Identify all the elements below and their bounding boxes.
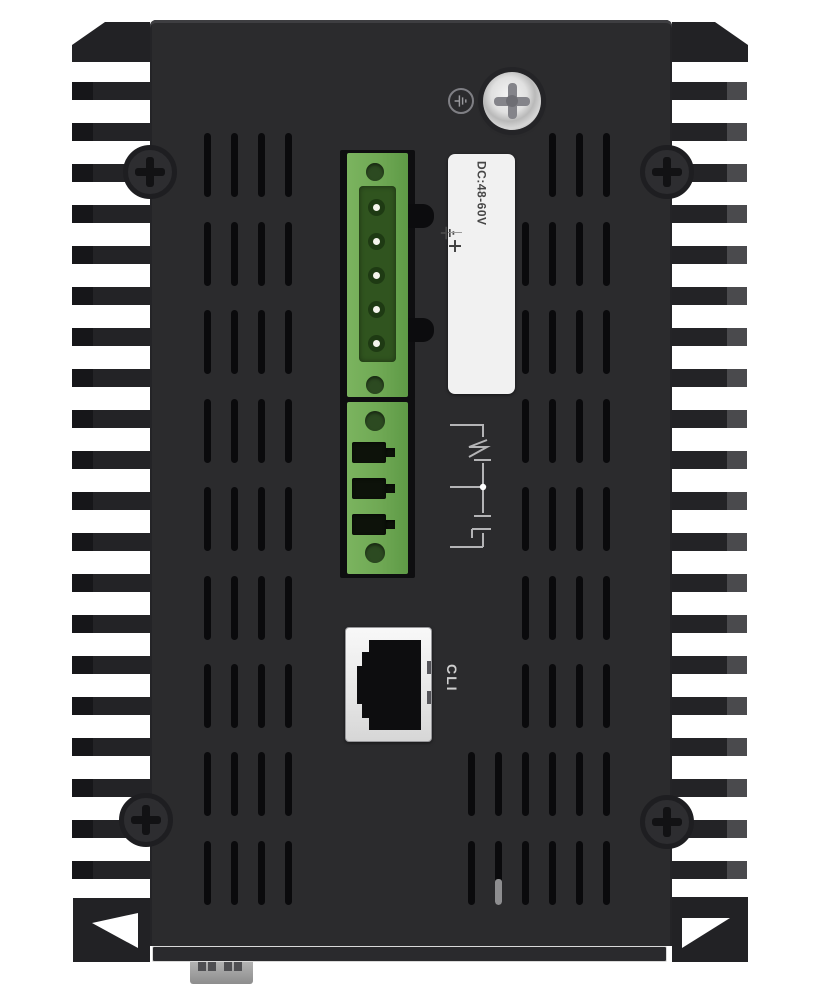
- vent-slot: [231, 222, 238, 286]
- screw-slot: [142, 805, 150, 835]
- terminal-pin: [368, 335, 385, 352]
- connector-screw-hole: [365, 411, 385, 431]
- vent-slot: [231, 310, 238, 374]
- heatsink-fin: [72, 574, 150, 592]
- vent-slot: [258, 752, 265, 816]
- connector-latch: [408, 204, 434, 228]
- heatsink-fin: [672, 615, 747, 633]
- vent-slot: [522, 752, 529, 816]
- screw-slot: [663, 807, 671, 837]
- heatsink-fin: [72, 369, 150, 387]
- bezel-mark: [427, 661, 431, 674]
- clip-notch: [208, 962, 216, 971]
- heatsink-fin: [72, 246, 150, 264]
- vent-slot: [258, 487, 265, 551]
- corner-screw-icon: [640, 795, 694, 849]
- vent-slot: [204, 752, 211, 816]
- heatsink-fin: [672, 574, 747, 592]
- fin-tip: [72, 533, 93, 551]
- dc-voltage-title: DC:48-60V: [448, 154, 515, 232]
- relay-wire-slot: [352, 478, 386, 499]
- clip-notch: [198, 962, 206, 971]
- vent-slot: [603, 576, 610, 640]
- fin-tip: [727, 533, 747, 551]
- cli-port-label: CLI: [444, 664, 460, 693]
- mounting-foot-left: [73, 898, 150, 962]
- vent-slot: [576, 310, 583, 374]
- vent-slot: [576, 752, 583, 816]
- connector-screw-hole: [366, 163, 384, 181]
- heatsink-fin: [72, 533, 150, 551]
- fin-tip: [72, 410, 93, 428]
- foot-cutout: [672, 897, 748, 962]
- vent-slot: [204, 576, 211, 640]
- heatsink-fin: [72, 738, 150, 756]
- vent-slot: [549, 133, 556, 197]
- vent-slot: [231, 399, 238, 463]
- relay-wire-slot: [352, 514, 386, 535]
- fin-tip: [727, 697, 747, 715]
- relay-wire-slot-notch: [386, 484, 395, 493]
- vent-slot: [576, 841, 583, 905]
- ground-symbol-icon: [448, 88, 474, 114]
- heatsink-fin: [72, 492, 150, 510]
- fin-tip: [72, 779, 93, 797]
- connector-latch: [408, 318, 434, 342]
- mounting-foot-right: [672, 897, 748, 962]
- vent-slot: [576, 487, 583, 551]
- heatsink-fin: [672, 246, 747, 264]
- fin-tip: [72, 738, 93, 756]
- vent-slot: [522, 664, 529, 728]
- corner-screw-icon: [123, 145, 177, 199]
- heatsink-fin: [672, 82, 747, 100]
- heatsink-fin: [72, 287, 150, 305]
- vent-slot: [285, 133, 292, 197]
- fin-tip: [72, 123, 93, 141]
- heatsink-fin: [672, 533, 747, 551]
- vent-slot: [576, 399, 583, 463]
- fin-tip: [727, 779, 747, 797]
- vent-slot: [522, 487, 529, 551]
- heatsink-fin: [72, 697, 150, 715]
- dc-voltage-label: DC:48-60V +− −+: [448, 154, 515, 394]
- fin-tip: [727, 123, 747, 141]
- fin-tip: [727, 492, 747, 510]
- heatsink-fin: [72, 451, 150, 469]
- grounding-screw-icon: [483, 72, 541, 130]
- vent-slot: [576, 664, 583, 728]
- fin-tip: [727, 328, 747, 346]
- vent-slot: [231, 664, 238, 728]
- vent-slot: [231, 133, 238, 197]
- relay-wire-slot-notch: [386, 448, 395, 457]
- vent-slot: [495, 752, 502, 816]
- vent-slot: [603, 310, 610, 374]
- heatsink-fin: [672, 287, 747, 305]
- fin-tip: [72, 451, 93, 469]
- fin-tip: [727, 410, 747, 428]
- heatsink-fin: [672, 123, 747, 141]
- bezel-mark: [427, 691, 431, 704]
- vent-slot: [522, 841, 529, 905]
- vent-slot: [603, 752, 610, 816]
- clip-notch: [224, 962, 232, 971]
- vent-slot: [231, 841, 238, 905]
- vent-slot: [285, 576, 292, 640]
- vent-slot: [522, 222, 529, 286]
- vent-slot: [231, 752, 238, 816]
- terminal-symbol: +: [448, 233, 462, 261]
- heatsink-fin: [72, 861, 150, 879]
- vent-slot: [549, 576, 556, 640]
- bottom-rail-bar: [152, 946, 667, 962]
- connector-screw-hole: [365, 543, 385, 563]
- heatsink-fin: [72, 123, 150, 141]
- vent-slot-gray-insert: [495, 879, 502, 905]
- fin-tip: [72, 697, 93, 715]
- vent-slot: [204, 664, 211, 728]
- vent-slot: [576, 576, 583, 640]
- screw-slot: [146, 157, 154, 187]
- fin-tip: [72, 287, 93, 305]
- heatsink-fin: [72, 82, 150, 100]
- terminal-symbol-cell: +: [448, 232, 462, 261]
- fin-tip: [727, 205, 747, 223]
- fin-tip: [727, 164, 747, 182]
- vent-slot: [549, 310, 556, 374]
- fin-tip: [72, 574, 93, 592]
- fin-tip: [72, 492, 93, 510]
- fin-tip: [72, 820, 93, 838]
- fin-tip: [72, 615, 93, 633]
- heatsink-fin: [72, 205, 150, 223]
- vent-slot: [258, 841, 265, 905]
- fin-tip: [727, 656, 747, 674]
- relay-wire-slot: [352, 442, 386, 463]
- connector-screw-hole: [366, 376, 384, 394]
- fin-tip: [72, 369, 93, 387]
- heatsink-fin: [672, 738, 747, 756]
- heatsink-fin: [72, 328, 150, 346]
- vent-slot: [468, 752, 475, 816]
- vent-slot: [204, 133, 211, 197]
- heatsink-fin: [672, 205, 747, 223]
- din-rail-clip: [190, 962, 253, 984]
- vent-slot: [549, 841, 556, 905]
- heatsink-fin: [672, 656, 747, 674]
- vent-slot: [285, 310, 292, 374]
- vent-slot: [204, 487, 211, 551]
- vent-slot: [603, 664, 610, 728]
- device-rear-panel: DC:48-60V +− −+ CLI: [0, 0, 820, 1000]
- foot-cutout: [73, 898, 150, 962]
- vent-slot: [258, 399, 265, 463]
- heatsink-fin: [672, 697, 747, 715]
- vent-slot: [495, 841, 502, 905]
- fin-tip: [727, 451, 747, 469]
- relay-contact-diagram-icon: [448, 420, 494, 552]
- terminal-pin: [368, 233, 385, 250]
- fin-tip: [727, 82, 747, 100]
- vent-slot: [285, 841, 292, 905]
- vent-slot: [204, 841, 211, 905]
- fin-tip: [727, 738, 747, 756]
- fin-tip: [72, 246, 93, 264]
- vent-slot: [285, 664, 292, 728]
- vent-slot: [258, 310, 265, 374]
- top-flange-right: [672, 22, 748, 62]
- vent-slot: [603, 487, 610, 551]
- vent-slot: [576, 222, 583, 286]
- vent-slot: [204, 399, 211, 463]
- fin-tip: [727, 574, 747, 592]
- vent-slot: [204, 222, 211, 286]
- heatsink-fin: [672, 328, 747, 346]
- vent-slot: [549, 399, 556, 463]
- fin-tip: [727, 369, 747, 387]
- rj45-jack-cavity: [357, 640, 421, 730]
- terminal-pin: [368, 199, 385, 216]
- fin-tip: [72, 328, 93, 346]
- fin-tip: [727, 820, 747, 838]
- fin-tip: [727, 861, 747, 879]
- vent-slot: [258, 222, 265, 286]
- fin-tip: [72, 164, 93, 182]
- top-flange-left: [72, 22, 150, 62]
- terminal-pin: [368, 301, 385, 318]
- terminal-pin: [368, 267, 385, 284]
- vent-slot: [522, 576, 529, 640]
- fin-tip: [727, 287, 747, 305]
- vent-slot: [549, 487, 556, 551]
- vent-slot: [549, 752, 556, 816]
- heatsink-fin: [672, 779, 747, 797]
- fin-tip: [72, 205, 93, 223]
- vent-slot: [231, 487, 238, 551]
- relay-wire-slot-notch: [386, 520, 395, 529]
- fin-tip: [72, 861, 93, 879]
- screw-center: [506, 95, 518, 107]
- vent-slot: [549, 222, 556, 286]
- fin-tip: [72, 656, 93, 674]
- fin-tip: [727, 615, 747, 633]
- vent-slot: [603, 222, 610, 286]
- vent-slot: [468, 841, 475, 905]
- heatsink-fin: [672, 451, 747, 469]
- fin-tip: [72, 82, 93, 100]
- vent-slot: [576, 133, 583, 197]
- vent-slot: [285, 487, 292, 551]
- heatsink-fin: [72, 656, 150, 674]
- vent-slot: [603, 841, 610, 905]
- heatsink-fin: [672, 369, 747, 387]
- vent-slot: [231, 576, 238, 640]
- clip-notch: [234, 962, 242, 971]
- corner-screw-icon: [640, 145, 694, 199]
- vent-slot: [258, 664, 265, 728]
- vent-slot: [204, 310, 211, 374]
- heatsink-fin: [672, 410, 747, 428]
- heatsink-fin: [672, 492, 747, 510]
- vent-slot: [549, 664, 556, 728]
- vent-slot: [258, 133, 265, 197]
- rj45-console-port: [345, 627, 432, 742]
- vent-slot: [522, 310, 529, 374]
- corner-screw-icon: [119, 793, 173, 847]
- heatsink-fin: [672, 861, 747, 879]
- vent-slot: [603, 133, 610, 197]
- screw-slot: [663, 157, 671, 187]
- vent-slot: [603, 399, 610, 463]
- heatsink-fin: [72, 615, 150, 633]
- fin-tip: [727, 246, 747, 264]
- vent-slot: [285, 222, 292, 286]
- vent-slot: [522, 399, 529, 463]
- vent-slot: [285, 752, 292, 816]
- terminal-symbol-cells: +− −+: [448, 232, 515, 394]
- vent-slot: [258, 576, 265, 640]
- vent-slot: [285, 399, 292, 463]
- heatsink-fin: [72, 410, 150, 428]
